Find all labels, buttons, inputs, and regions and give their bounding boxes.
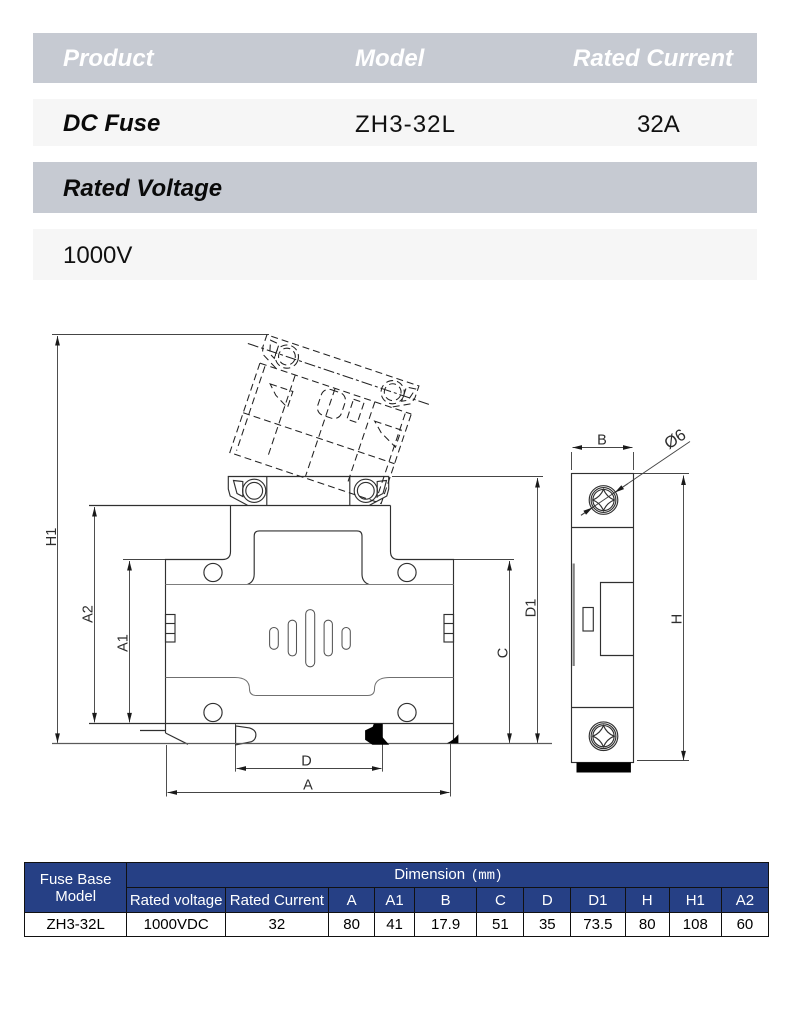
- svg-text:Ø6: Ø6: [661, 426, 689, 453]
- svg-text:D1: D1: [524, 599, 540, 618]
- svg-text:D: D: [301, 754, 311, 770]
- svg-text:B: B: [597, 433, 607, 449]
- svg-text:A1: A1: [115, 634, 131, 652]
- svg-text:A: A: [303, 778, 313, 794]
- svg-text:A2: A2: [81, 605, 97, 623]
- svg-text:C: C: [496, 648, 512, 658]
- svg-text:H: H: [670, 614, 686, 624]
- svg-text:H1: H1: [44, 528, 60, 547]
